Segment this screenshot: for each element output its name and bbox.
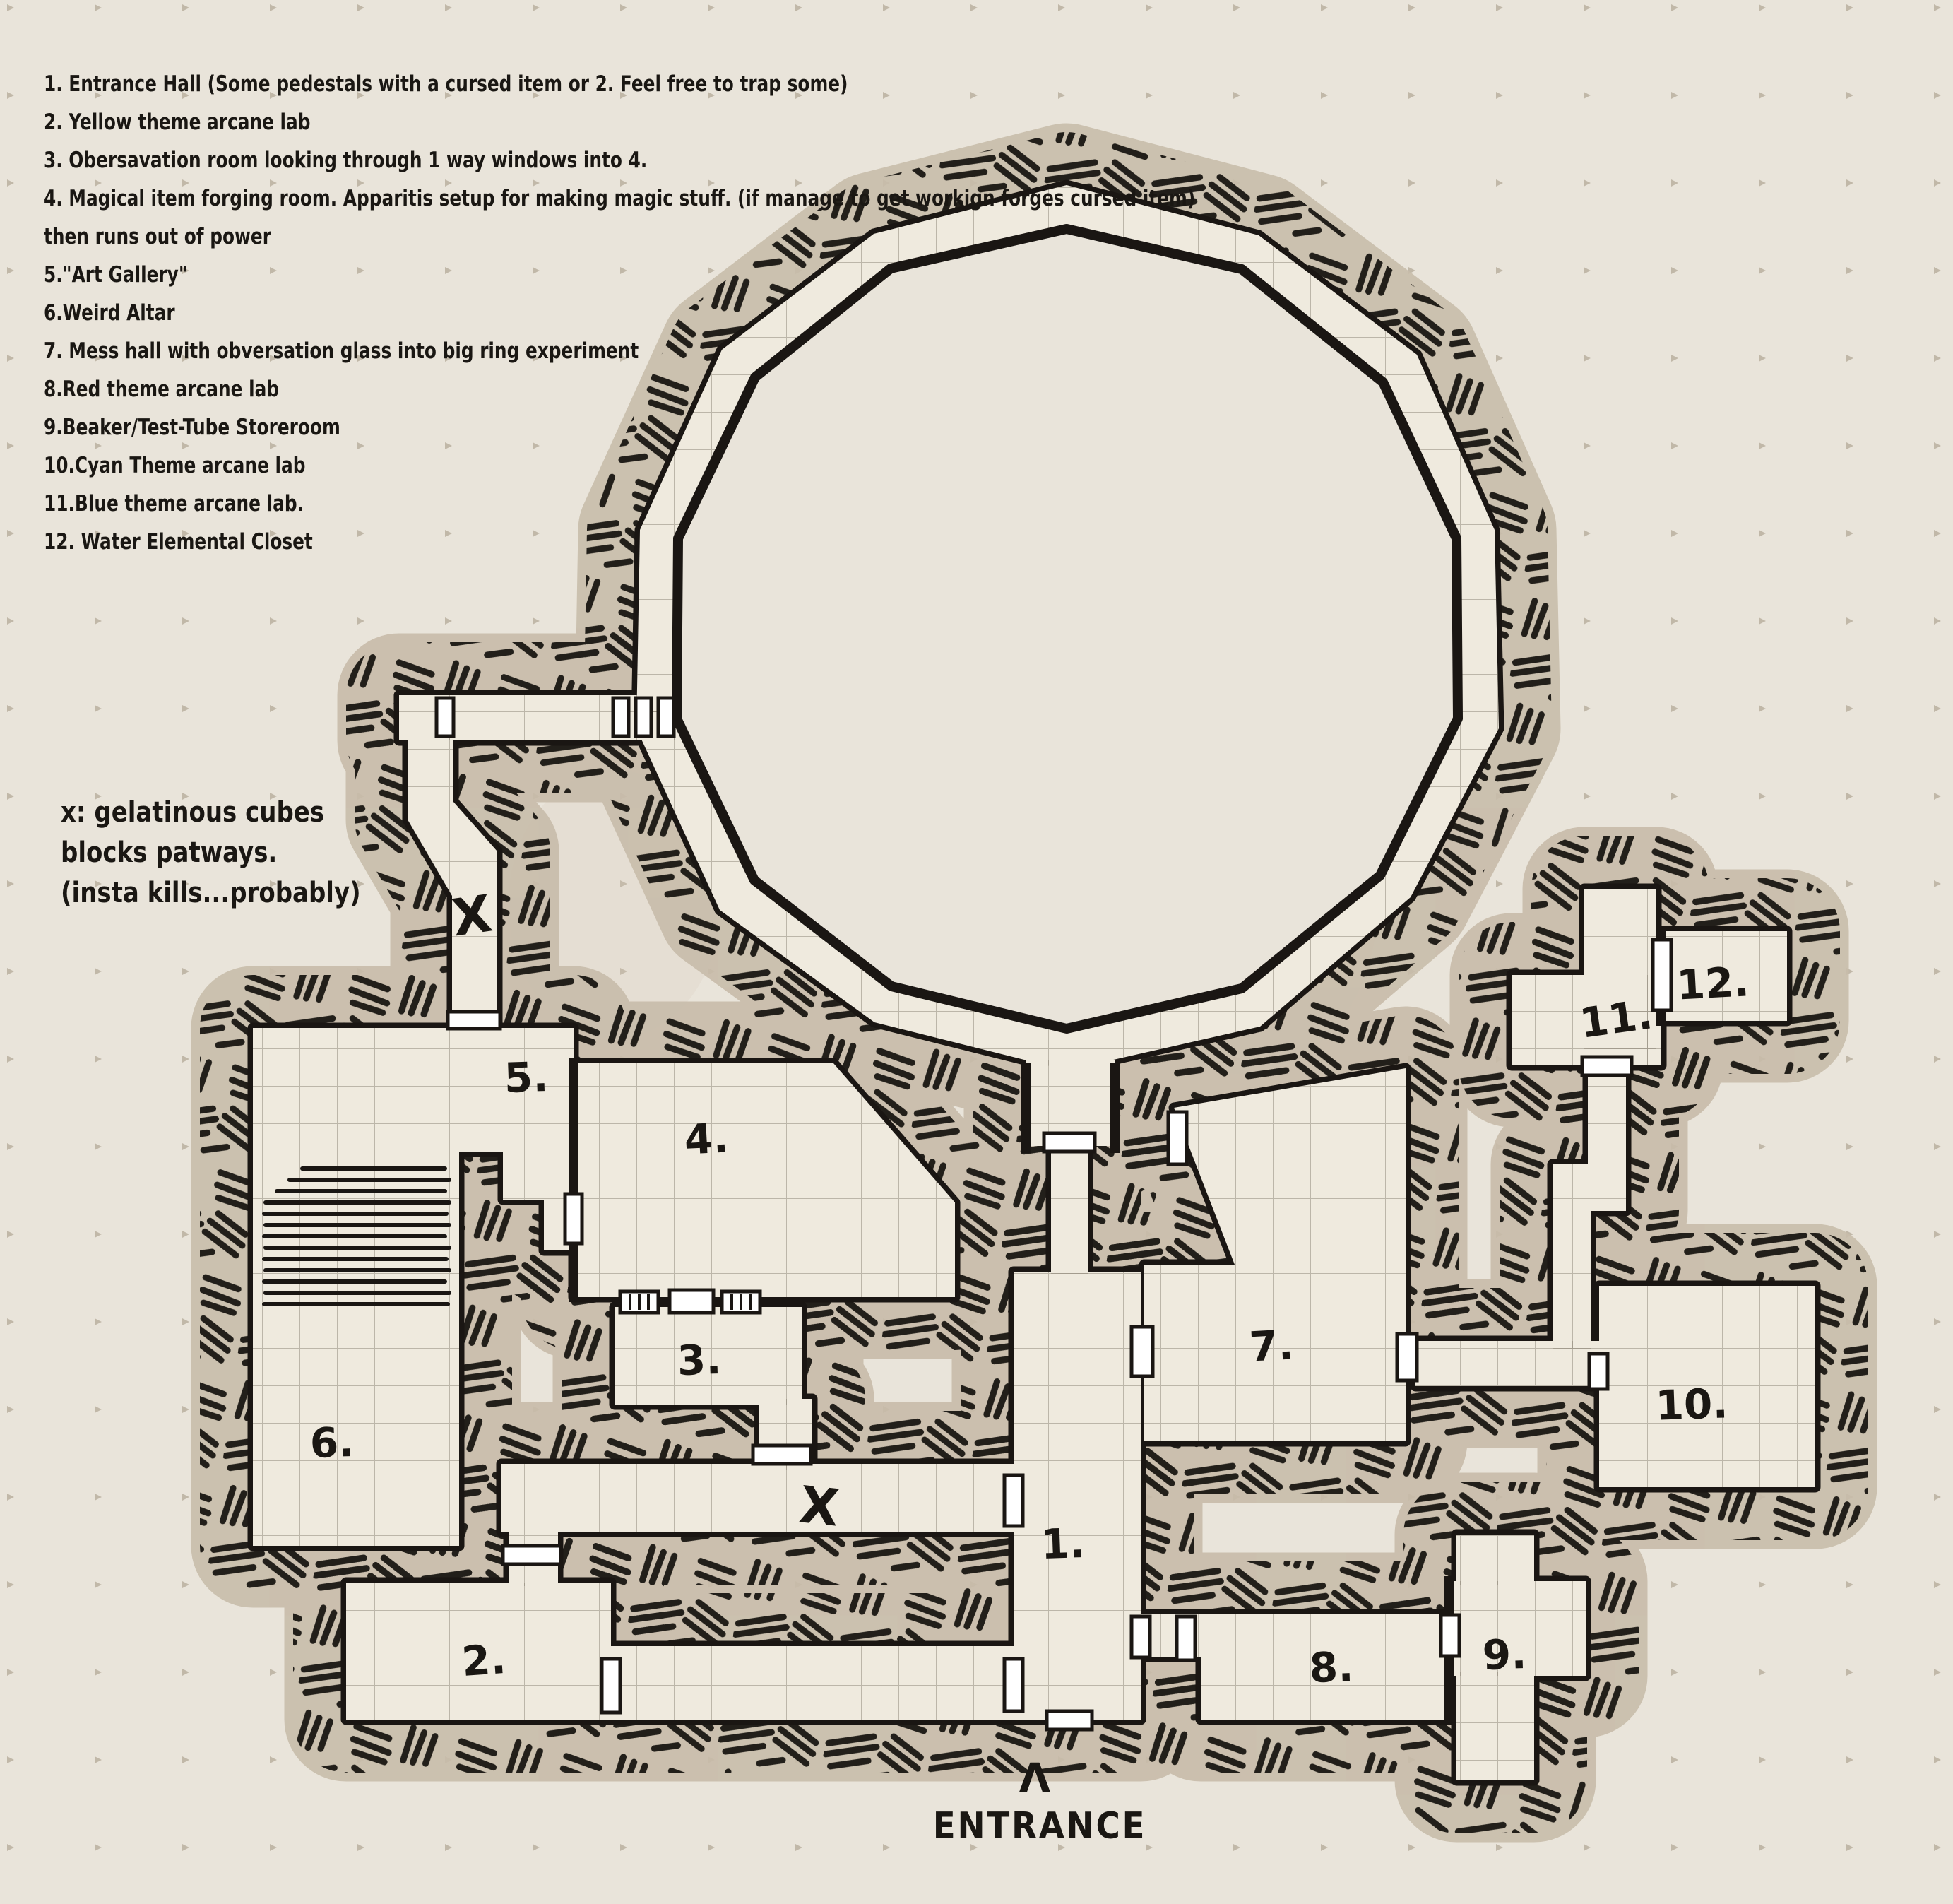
legend-line: 11.Blue theme arcane lab. <box>44 485 1195 523</box>
legend-line: 6.Weird Altar <box>44 294 1195 332</box>
legend-line: 2. Yellow theme arcane lab <box>44 103 1195 141</box>
legend-line: 12. Water Elemental Closet <box>44 523 1195 561</box>
legend-line: then runs out of power <box>44 218 1195 256</box>
legend-line: 7. Mess hall with obversation glass into… <box>44 332 1195 370</box>
legend-line: 1. Entrance Hall (Some pedestals with a … <box>44 65 1195 103</box>
gelatinous-cube-note: x: gelatinous cubesblocks patways.(insta… <box>61 793 414 913</box>
dungeon-map-page: 1. Entrance Hall (Some pedestals with a … <box>0 0 1953 1904</box>
legend-line: 8.Red theme arcane lab <box>44 370 1195 408</box>
one-way-windows <box>620 1290 760 1313</box>
legend-line: 3. Obersavation room looking through 1 w… <box>44 141 1195 179</box>
note-line: (insta kills...probably) <box>61 873 361 913</box>
legend-line: 5."Art Gallery" <box>44 256 1195 294</box>
note-line: blocks patways. <box>61 833 361 873</box>
legend-line: 9.Beaker/Test-Tube Storeroom <box>44 408 1195 447</box>
legend: 1. Entrance Hall (Some pedestals with a … <box>44 65 1483 561</box>
legend-line: 10.Cyan Theme arcane lab <box>44 447 1195 485</box>
legend-line: 4. Magical item forging room. Apparitis … <box>44 179 1195 218</box>
note-line: x: gelatinous cubes <box>61 793 361 833</box>
